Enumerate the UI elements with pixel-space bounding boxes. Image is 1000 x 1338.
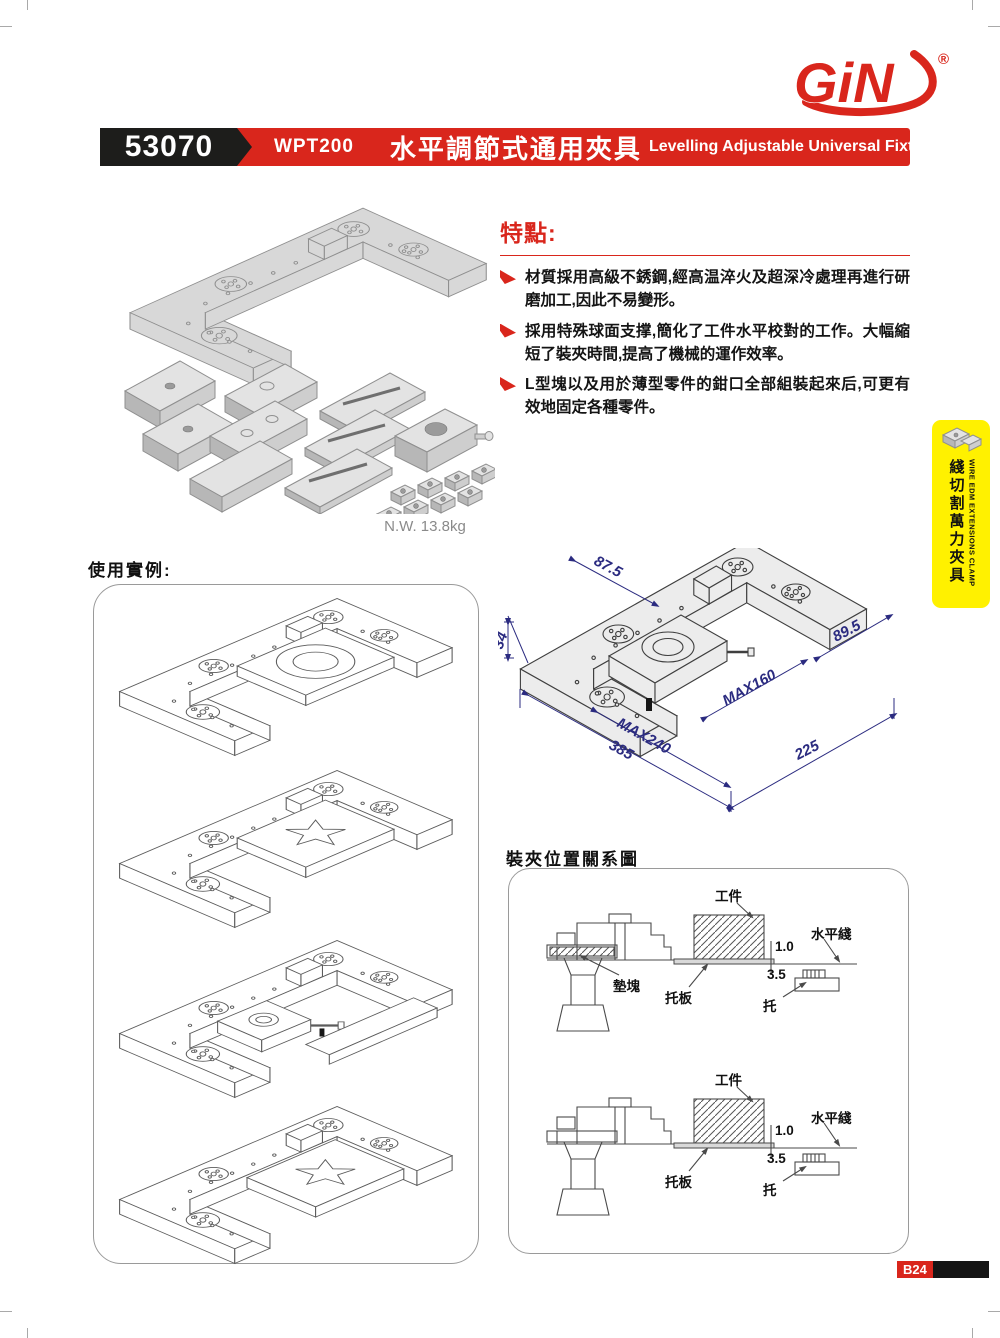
gin-logo-graphic: GiN ®	[768, 44, 963, 120]
clamping-diagram-1: 工件 水平綫 1.0 3.5 墊塊 托板 托	[519, 883, 898, 1059]
tnut-clamps	[377, 464, 495, 514]
label-pad-block: 墊塊	[613, 975, 640, 995]
side-tab-label-zh: 綫切割萬力夾具	[946, 459, 967, 587]
usage-drawing-star	[100, 765, 472, 931]
feature-item: 採用特殊球面支撑,簡化了工件水平校對的工作。大幅縮短了裝夾時間,提高了機械的運作…	[500, 320, 910, 367]
catalog-number-chip: 53070	[100, 128, 252, 166]
label-support-plate: 托板	[665, 987, 692, 1007]
crop-mark	[0, 26, 12, 27]
usage-examples-heading: 使用實例:	[88, 556, 172, 581]
side-tab-text: 綫切割萬力夾具 WIRE EDM EXTENSIONS CLAMP	[946, 459, 977, 587]
clamping-diagram-1-art	[519, 883, 898, 1059]
label-workpiece: 工件	[715, 1069, 742, 1089]
clamping-diagram-2-art	[519, 1067, 898, 1243]
dim-87-5: 87.5	[591, 553, 625, 582]
header-red-band: WPT200 水平調節式通用夾具 Levelling Adjustable Un…	[218, 128, 910, 166]
side-tab-thumbnail	[939, 425, 983, 455]
label-support: 托	[763, 995, 777, 1015]
crop-mark	[27, 0, 28, 10]
crop-mark	[0, 1311, 12, 1312]
page-number-bar	[933, 1261, 989, 1278]
feature-text: 材質採用高級不銹鋼,經高温淬火及超深冷處理再進行研磨加工,因此不易變形。	[525, 266, 910, 313]
side-tab-label-en: WIRE EDM EXTENSIONS CLAMP	[968, 459, 977, 587]
features-heading: 特點:	[500, 214, 910, 256]
trademark-symbol: ®	[938, 51, 949, 68]
label-support-plate: 托板	[665, 1171, 692, 1191]
page-number: B24	[897, 1261, 933, 1278]
vise-block	[395, 409, 493, 472]
dim-34: 34	[498, 629, 512, 651]
model-number: WPT200	[274, 136, 354, 158]
crop-mark	[972, 0, 973, 10]
features-section: 特點: 材質採用高級不銹鋼,經高温淬火及超深冷處理再進行研磨加工,因此不易變形。…	[500, 214, 910, 427]
bullet-triangle-icon	[500, 270, 516, 284]
usage-drawing-ring	[100, 593, 472, 759]
label-level-line: 水平綫	[811, 1107, 852, 1127]
label-workpiece: 工件	[715, 885, 742, 905]
crop-mark	[988, 26, 1000, 27]
dimension-drawing: 87.5 34 89.5 MAX160 MAX240 385 225	[498, 548, 905, 824]
feature-text: 採用特殊球面支撑,簡化了工件水平校對的工作。大幅縮短了裝夾時間,提高了機械的運作…	[525, 320, 910, 367]
feature-text: L型塊以及用於薄型零件的鉗口全部組裝起來后,可更有效地固定各種零件。	[525, 373, 910, 420]
usage-examples-box	[93, 584, 479, 1264]
label-gap-bottom: 3.5	[767, 967, 786, 982]
usage-drawing-star-2	[100, 1101, 472, 1267]
catalog-page: GiN ® WPT200 水平調節式通用夾具 Levelling Adjusta…	[0, 0, 1000, 1338]
page-title: 水平調節式通用夾具	[390, 129, 642, 166]
section-side-tab: 綫切割萬力夾具 WIRE EDM EXTENSIONS CLAMP	[932, 420, 990, 608]
clamping-diagram-2: 工件 水平綫 1.0 3.5 托板 托	[519, 1067, 898, 1243]
net-weight: N.W. 13.8kg	[360, 518, 490, 535]
label-gap-top: 1.0	[775, 939, 794, 954]
crop-mark	[972, 1328, 973, 1338]
clamping-diagram-heading: 裝夾位置關系圖	[506, 845, 639, 870]
label-gap-top: 1.0	[775, 1123, 794, 1138]
dim-max160: MAX160	[720, 666, 780, 709]
brand-logo: GiN ®	[768, 44, 963, 120]
crop-mark	[27, 1328, 28, 1338]
usage-drawing-clamp	[100, 935, 472, 1101]
bullet-triangle-icon	[500, 377, 516, 391]
feature-item: L型塊以及用於薄型零件的鉗口全部組裝起來后,可更有效地固定各種零件。	[500, 373, 910, 420]
clamping-diagram-box: 工件 水平綫 1.0 3.5 墊塊 托板 托	[508, 868, 909, 1254]
dim-225: 225	[791, 737, 822, 764]
bullet-triangle-icon	[500, 324, 516, 338]
label-gap-bottom: 3.5	[767, 1151, 786, 1166]
label-level-line: 水平綫	[811, 923, 852, 943]
header-bar: WPT200 水平調節式通用夾具 Levelling Adjustable Un…	[100, 128, 910, 166]
product-photo	[95, 196, 495, 514]
label-support: 托	[763, 1179, 777, 1199]
crop-mark	[988, 1311, 1000, 1312]
feature-item: 材質採用高級不銹鋼,經高温淬火及超深冷處理再進行研磨加工,因此不易變形。	[500, 266, 910, 313]
page-number-tab: B24	[897, 1261, 989, 1278]
catalog-number: 53070	[125, 130, 227, 164]
page-title-en: Levelling Adjustable Universal Fixture	[649, 138, 938, 156]
logo-text: GiN	[794, 51, 895, 114]
